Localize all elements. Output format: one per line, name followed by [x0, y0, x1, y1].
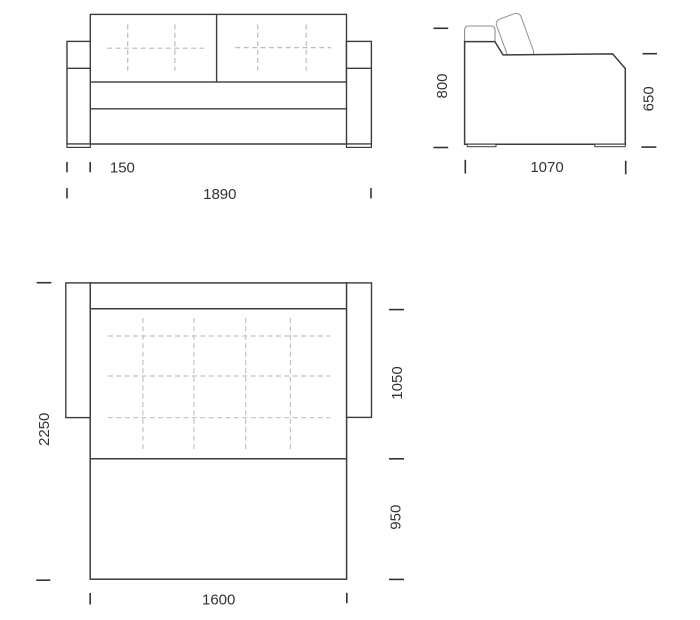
svg-text:1600: 1600	[202, 591, 235, 608]
svg-text:950: 950	[388, 505, 405, 530]
svg-text:650: 650	[640, 86, 657, 111]
svg-text:1070: 1070	[530, 159, 563, 176]
svg-text:2250: 2250	[36, 413, 53, 446]
svg-text:800: 800	[434, 73, 451, 98]
svg-text:1890: 1890	[203, 186, 236, 203]
svg-text:150: 150	[110, 160, 135, 177]
svg-text:1050: 1050	[389, 366, 406, 399]
